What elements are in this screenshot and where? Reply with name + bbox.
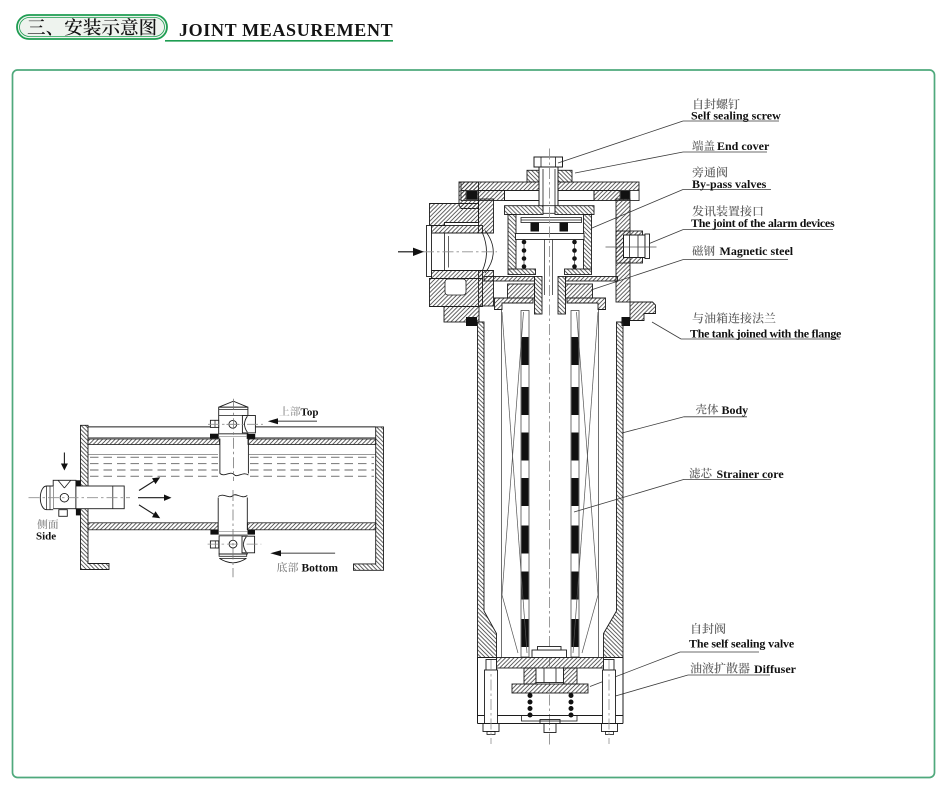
svg-text:Self sealing screw: Self sealing screw — [691, 109, 781, 123]
svg-text:Side: Side — [36, 531, 56, 543]
svg-text:The self sealing valve: The self sealing valve — [689, 637, 795, 651]
svg-text:Magnetic steel: Magnetic steel — [720, 244, 794, 258]
svg-text:Top: Top — [301, 407, 319, 419]
svg-text:By-pass valves: By-pass valves — [692, 177, 767, 191]
svg-text:The tank joined with the flang: The tank joined with the flange — [690, 327, 842, 341]
svg-text:End cover: End cover — [717, 139, 770, 153]
svg-text:Bottom: Bottom — [302, 563, 339, 575]
svg-text:The joint of the alarm devices: The joint of the alarm devices — [691, 216, 835, 230]
svg-text:Diffuser: Diffuser — [754, 662, 797, 676]
svg-text:Body: Body — [722, 403, 749, 417]
svg-text:Strainer core: Strainer core — [717, 467, 785, 481]
svg-text:JOINT MEASUREMENT: JOINT MEASUREMENT — [179, 20, 393, 40]
